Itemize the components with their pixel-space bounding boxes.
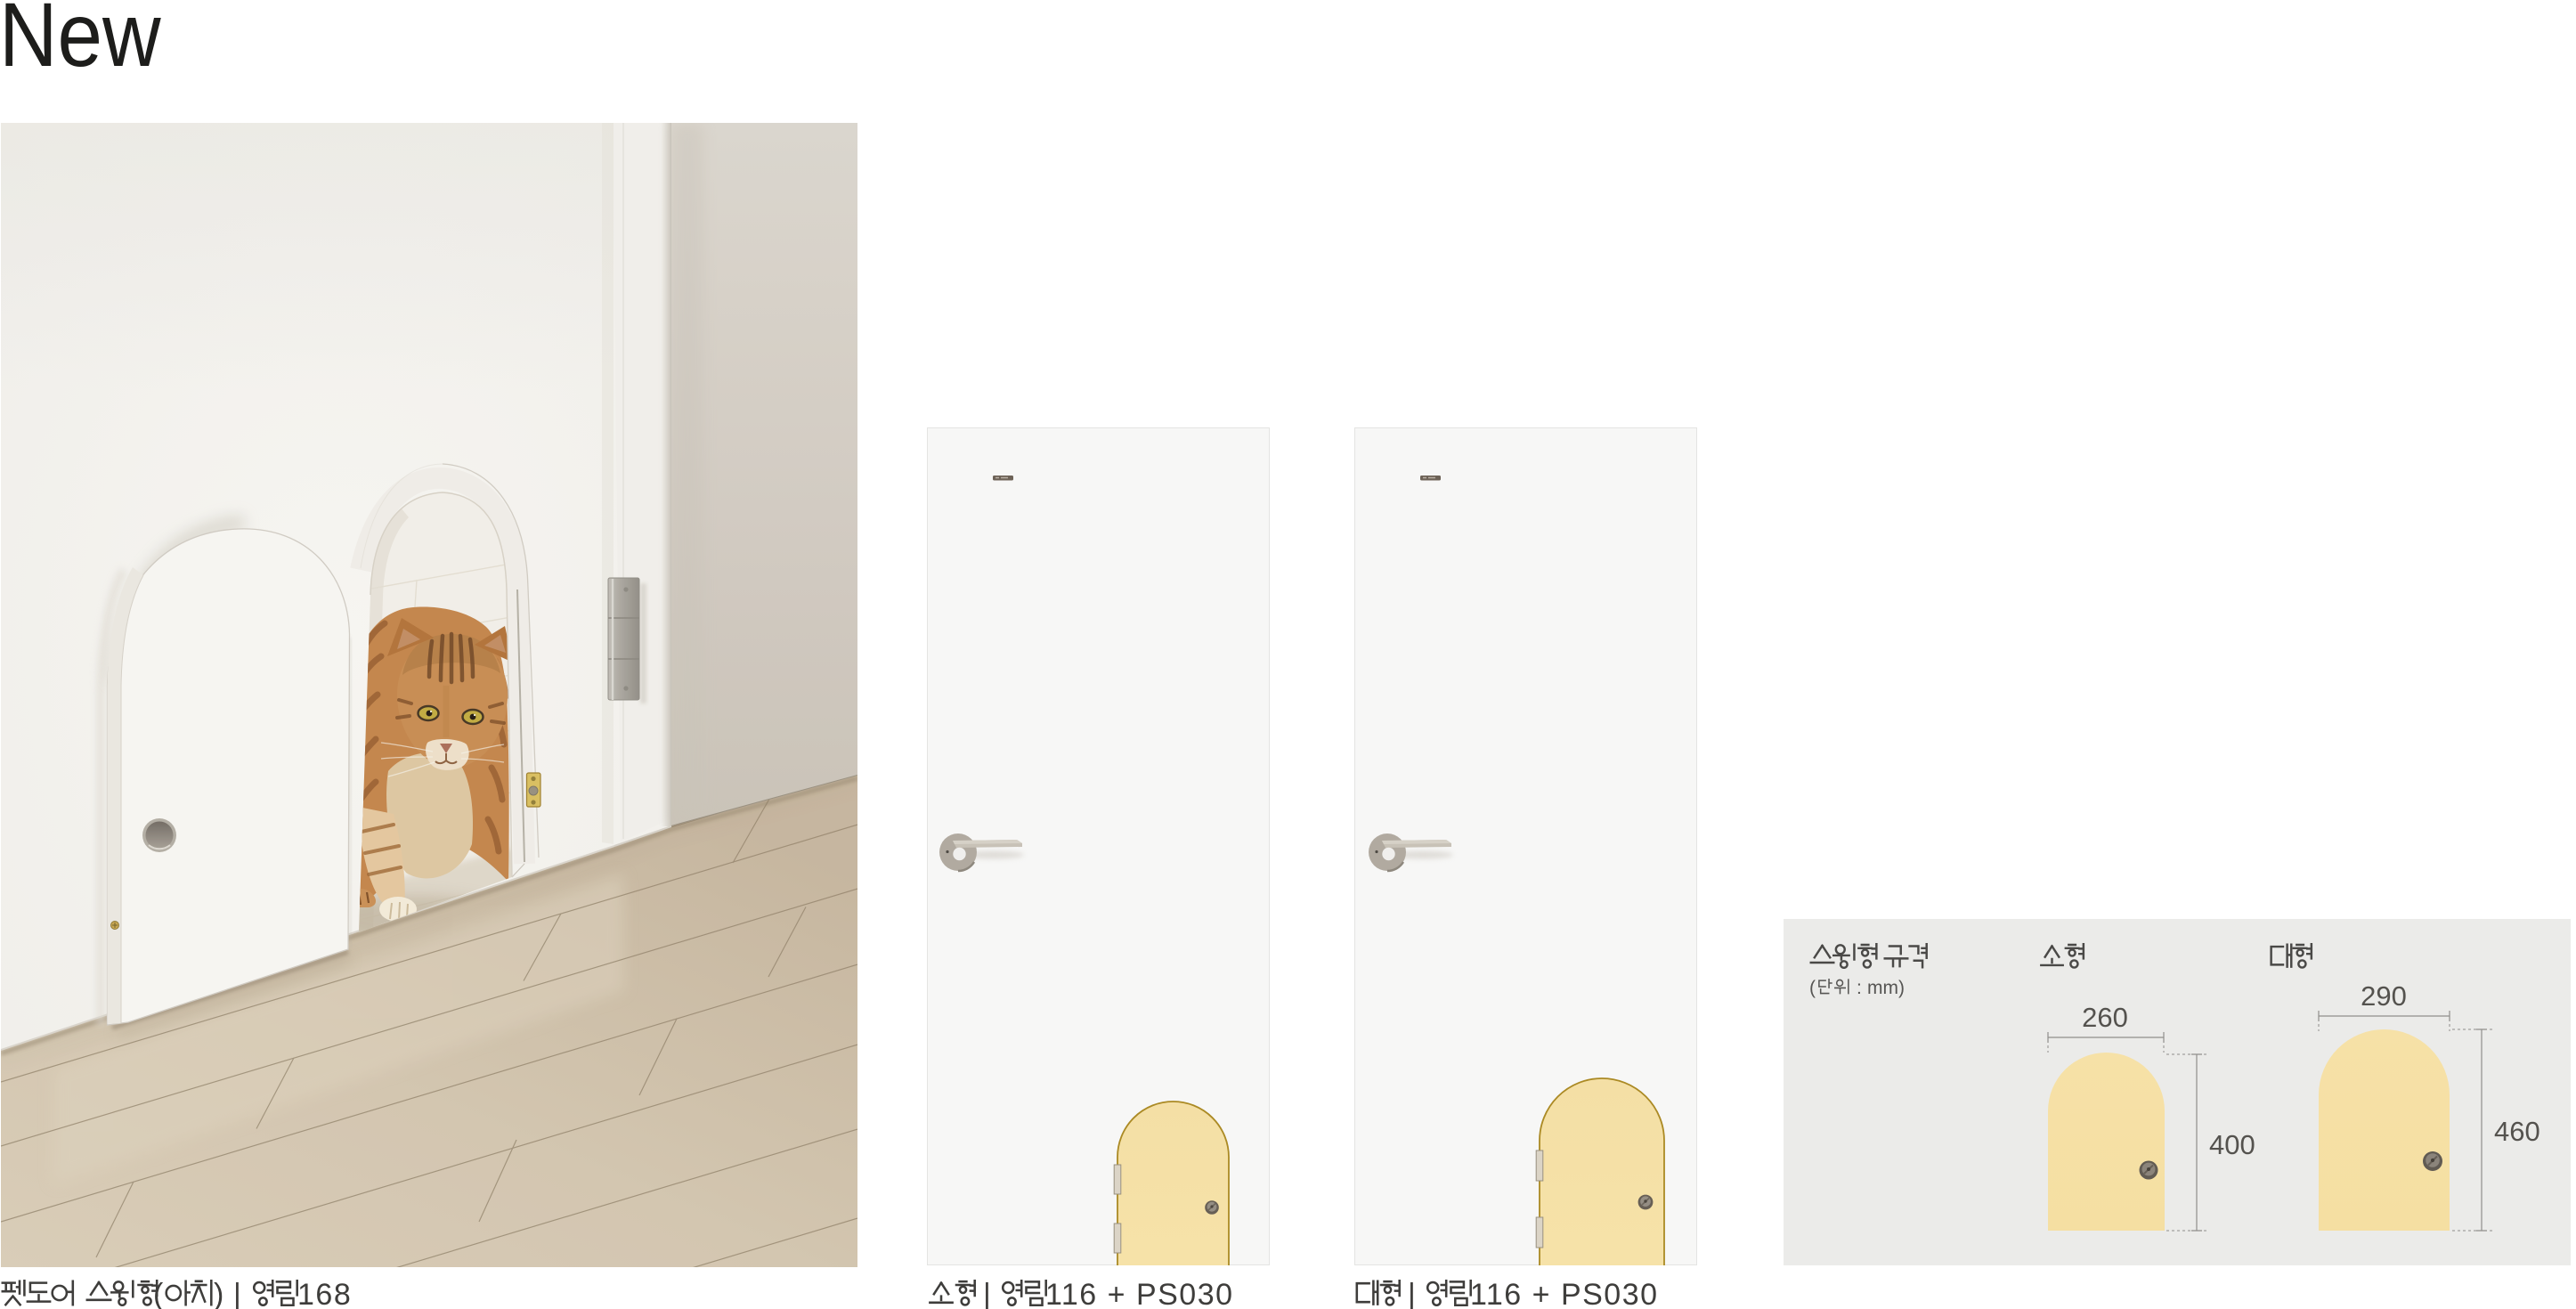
svg-text:400: 400 <box>2209 1129 2255 1160</box>
svg-text:168: 168 <box>297 1278 352 1309</box>
svg-text:290: 290 <box>2361 980 2407 1012</box>
svg-text:260: 260 <box>2082 1002 2128 1033</box>
svg-text:|: | <box>233 1278 241 1309</box>
svg-text:|: | <box>1408 1278 1416 1309</box>
svg-text:): ) <box>214 1278 223 1309</box>
svg-text:116 + PS030: 116 + PS030 <box>1470 1278 1659 1309</box>
svg-text:mm): mm) <box>1867 978 1905 998</box>
svg-text:|: | <box>983 1278 991 1309</box>
svg-text::: : <box>1857 978 1862 998</box>
svg-text:116 + PS030: 116 + PS030 <box>1045 1278 1234 1309</box>
svg-text:460: 460 <box>2494 1116 2540 1147</box>
svg-text:(: ( <box>1809 978 1816 998</box>
svg-text:(: ( <box>153 1278 164 1309</box>
